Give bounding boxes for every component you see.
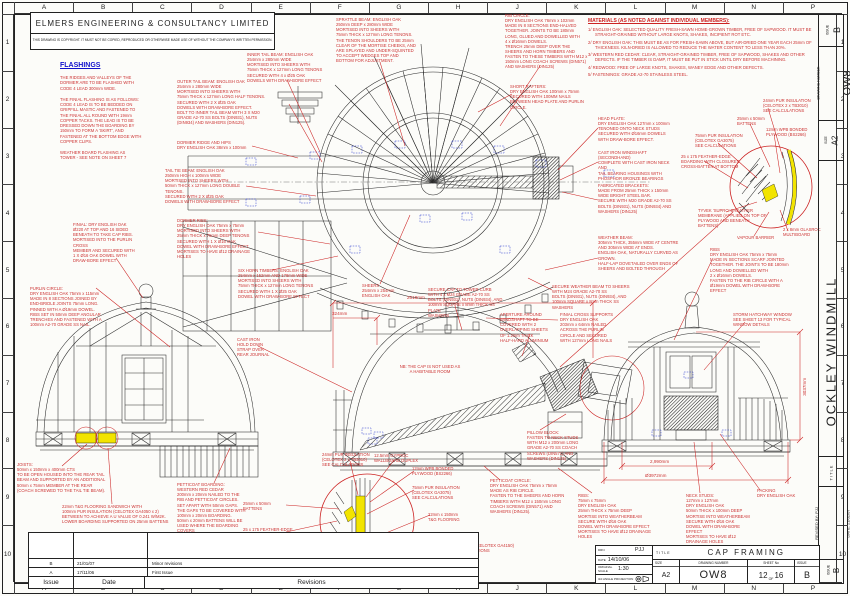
- issue-value: B: [795, 567, 819, 583]
- revision-description: First Issue: [148, 570, 478, 575]
- annotation: HEAD PLATE: DRY ENGLISH OAK 127mm x 100m…: [598, 116, 670, 142]
- third-angle-projection-icon: [635, 575, 649, 583]
- flashings-paragraph: WEATHER BOARD FLASHING AS TOWER - SEE NO…: [60, 150, 185, 161]
- size-value-side: A2: [831, 135, 840, 145]
- drawing-number: OW8: [680, 567, 747, 583]
- annotation: DORMER RIBS: DRY ENGLISH OAK 75mm x 75mm…: [177, 218, 259, 259]
- annotation: RIB CIRCLE: DRY ENGLISH OAK 76mm x 102mm…: [505, 13, 595, 69]
- project-name: OCKLEY WINDMILL: [824, 276, 839, 426]
- annotation: 3037mm: [802, 366, 808, 396]
- issue-value-top: B: [832, 27, 842, 33]
- annotation: PILLOW BLOCK: FASTEN TO NECK STUDS WITH …: [527, 430, 589, 461]
- company-header: ELMERS ENGINEERING & CONSULTANCY LIMITED…: [30, 12, 275, 50]
- drawing-sheet: ABCDEFGHJKLMNP ABCDEFGHJKLMNP 1234567891…: [0, 0, 850, 596]
- annotation: PURLIN CIRCLE: DRY ENGLISH OAK 75mm x 11…: [30, 286, 110, 327]
- annotation: TYVEK 'SUPRO' BREATHER MEMBRANE (APPLIED…: [698, 208, 770, 229]
- materials-item: 5/ FASTENINGS: GRADE A2-70 STAINLESS STE…: [588, 72, 824, 77]
- annotation: 2,990mm: [650, 459, 690, 465]
- revisions-header-row: Issue Date Revisions: [29, 576, 478, 588]
- title-label: TITLE: [653, 551, 674, 555]
- annotation: 75mm PUR INSULATION (CELOTEX GA3075) SEE…: [412, 485, 467, 500]
- annotation: 324mm: [332, 311, 362, 317]
- side-title-strip: ISSUE B DRAWING NUMBER OW8 SIZE A2 OCKLE…: [818, 14, 843, 582]
- drawing-title: CAP FRAMING: [674, 548, 819, 557]
- annotation: CAST IRON HOLD DOWN STRAP OVER REAR JOUR…: [237, 337, 285, 358]
- annotation: RIBS DRY ENGLISH OAK 75mm x 75mm MADE IN…: [710, 247, 802, 293]
- date-value: 14/10/06: [608, 557, 629, 563]
- annotation: SECURE WEATHER BEAM TO SHEERS WITH M24 G…: [552, 284, 632, 310]
- materials-section: MATERIALS (AS NOTED AGAINST INDIVIDUAL M…: [588, 18, 824, 79]
- revisions-header-date: Date: [74, 577, 145, 588]
- scale-value: 1:30: [618, 566, 629, 572]
- drn-label: DRN: [598, 548, 605, 552]
- revision-description: Minor revisions: [148, 561, 478, 566]
- annotation: 12mm WPB BONDED PLYWOOD (BS2266): [412, 466, 464, 476]
- annotation: 24mm PUR INSULATION (CELOTEX 2 x TB3010)…: [322, 452, 377, 467]
- annotation: 12mm WPB BONDED PLYWOOD (BS2266): [766, 127, 821, 137]
- annotation: 22mm x 150mm T&G FLOORING: [428, 512, 476, 522]
- revision-row-empty: [29, 533, 478, 558]
- annotation: SIX HORN TIMBERS: ENGLISH OAK 254mm x 15…: [238, 268, 316, 299]
- company-name: ELMERS ENGINEERING & CONSULTANCY LIMITED: [31, 13, 274, 34]
- date-label: DATE: [598, 558, 606, 562]
- highlight-joint: [76, 433, 96, 443]
- sheet-of-label: OF: [769, 577, 774, 581]
- annotation: 24mm PUR INSULATION (CELOTEX 2 x TB3010)…: [763, 98, 821, 113]
- revision-row: B 21/01/07 Minor revisions: [29, 558, 478, 567]
- revised-by: REVISED BY: PJJ: [813, 507, 818, 540]
- size-label: SIZE: [653, 560, 679, 567]
- issue-value-bottom: B: [832, 567, 841, 572]
- annotation: FINIAL: DRY ENGLISH OAK Ø220 AT TOP AND …: [73, 222, 148, 263]
- title-label-side: TITLE: [828, 464, 833, 480]
- materials-heading: MATERIALS (AS NOTED AGAINST INDIVIDUAL M…: [588, 18, 824, 24]
- highlight-joint: [98, 433, 116, 443]
- sheet-total: 16: [774, 571, 783, 580]
- issue-label: ISSUE: [795, 560, 819, 567]
- flashings-heading: FLASHINGS: [60, 62, 185, 69]
- annotation: SPRATTLE BEAM: ENGLISH OAK 250mm DEEP x …: [336, 17, 424, 63]
- annotation: Ø3972mm: [645, 473, 690, 479]
- drawing-number-label: DRAWING NUMBER: [680, 560, 747, 567]
- materials-item: 2/ DRY ENGLISH OAK: THIS MUST BE AS FOR …: [588, 40, 824, 51]
- copyright-note: THIS DRAWING IS COPYRIGHT. IT MUST NOT B…: [31, 34, 274, 42]
- annotation: SHEERS 254mm x 254mm ENGLISH OAK: [362, 283, 407, 298]
- revision-date: 21/01/07: [74, 559, 148, 567]
- annotation: APERTURE AROUND WINDSHAFT TO BE COVERED …: [500, 312, 562, 343]
- annotation: FINIAL CROSS SUPPORTS DRY ENGLISH OAK 20…: [560, 312, 630, 343]
- annotation: VAPOUR BARRIER: [737, 235, 782, 240]
- revision-row: A 17/11/06 First Issue: [29, 567, 478, 576]
- materials-item: 1/ ENGLISH OAK: SELECTED QUALITY FRESH-S…: [588, 27, 824, 38]
- materials-item: 3/ WESTERN RED CEDAR: CLEAR, STRAIGHT-GR…: [588, 52, 824, 63]
- annotation: CAST IRON WINDSHAFT (SECONDHAND) COMPLET…: [598, 150, 678, 181]
- annotation: JOISTS: 50mm x 150mm x 400mm CTS TO BE O…: [17, 462, 112, 493]
- revised-date: DATE: 21/01/07: [846, 509, 850, 537]
- annotation: PACKING DRY ENGLISH OAK: [757, 488, 802, 498]
- issue-label-bottom: ISSUE: [826, 565, 830, 576]
- revisions-header-revisions: Revisions: [145, 579, 478, 586]
- sheet-label: SHEET No: [748, 560, 794, 567]
- annotation: TAIL TIE BEAM: ENGLISH OAK 250mm HIGH x …: [165, 168, 247, 204]
- revision-issue: B: [29, 559, 74, 567]
- size-label-side: SIZE: [824, 136, 828, 144]
- annotation: 22mm T&G FLOORING SANDWICH WITH 100mm PU…: [62, 504, 172, 525]
- annotation: 2618mm: [407, 295, 447, 301]
- revisions-table: B 21/01/07 Minor revisions A 17/11/06 Fi…: [28, 532, 479, 589]
- sheet-number: 12: [759, 571, 768, 580]
- annotation: SECURE CAP TO TOWER CURB WITH 4 x M24 GR…: [428, 287, 506, 318]
- annotation: 25mm x 50mm BATTENS: [737, 116, 777, 126]
- title-block: DRNPJJ DATE14/10/06 ORIGINAL SCALE1:30 3…: [595, 545, 820, 584]
- annotation: FABRICATED BRACKETS: MADE FROM 25mm THIC…: [598, 183, 678, 214]
- revision-date: 17/11/06: [74, 568, 148, 576]
- flashings-paragraph: THE FINIAL FLASHING IS AS FOLLOWS: CODE …: [60, 97, 185, 144]
- annotation: RIBS: 75mm x 75mm DRY ENGLISH OAK 25mm T…: [578, 493, 654, 539]
- annotation: NB: THE CAP IS NOT USED AS A HABITABLE R…: [385, 364, 475, 374]
- projection-label: 3rd ANGLE PROJECTION: [598, 577, 633, 581]
- annotation: SHORT RAFTERS: DRY ENGLISH OAK 100mm x 7…: [510, 84, 588, 110]
- size-value: A2: [653, 567, 679, 583]
- annotation: 75mm PUR INSULATION (CELOTEX GA3075) SEE…: [695, 133, 747, 148]
- drawing-number-label-side: DRAWING NUMBER: [816, 67, 820, 100]
- annotation: OUTER TAIL BEAM: ENGLISH OAK 254mm x 280…: [177, 79, 289, 125]
- annotation: WEATHER BEAM: 305mm THICK, 355mm WIDE AT…: [598, 235, 680, 271]
- flashings-section: FLASHINGS THE RIDGES AND VALLEYS OF THE …: [60, 62, 185, 167]
- annotation: NECK STUDS: 127mm x 127mm DRY ENGLISH OA…: [686, 493, 752, 544]
- annotation: PETTICOAT CIRCLE: DRY ENGLISH OAK 75mm x…: [490, 478, 568, 514]
- issue-label-top: ISSUE: [825, 25, 829, 36]
- annotation: DORMER RIDGE AND HIPS DRY ENGLISH OAK 38…: [177, 140, 257, 150]
- flashings-paragraph: THE RIDGES AND VALLEYS OF THE DORMER ARE…: [60, 75, 185, 91]
- scale-label: ORIGINAL SCALE: [598, 565, 616, 573]
- drawing-number-side: OW8: [842, 70, 850, 95]
- revision-issue: A: [29, 568, 74, 576]
- annotation: 25 x 175 FEATHER-EDGE BOARDING WITH CLOS…: [681, 154, 741, 169]
- materials-item: 4/ REDWOOD: FREE OF LARGE KNOTS, SHAKES,…: [588, 65, 824, 70]
- annotation: 12.5mm GYPROC WALLBOARD DUPLEX: [374, 453, 424, 463]
- revisions-header-issue: Issue: [29, 577, 74, 588]
- annotation: STORM HATCHWAY WINDOW SEE SHEET 13 FOR T…: [733, 312, 801, 327]
- drn-value: PJJ: [635, 547, 644, 553]
